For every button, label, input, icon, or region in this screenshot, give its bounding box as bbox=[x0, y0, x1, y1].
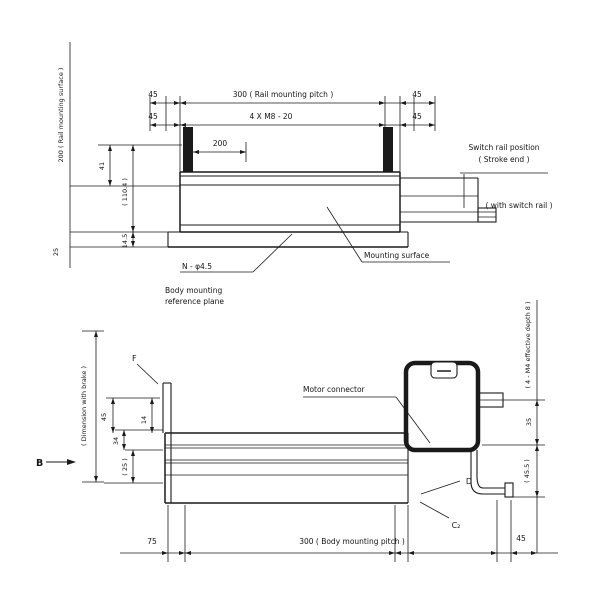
technical-drawing: 200 ( Rail mounting surface ) 45 300 ( R… bbox=[0, 0, 600, 600]
dim-75: 75 bbox=[147, 537, 157, 546]
dim-main-bottom: 300 ( Body mounting pitch ) bbox=[299, 537, 405, 546]
dimension-arrows-top bbox=[150, 101, 435, 127]
mounting-surface-leader bbox=[327, 207, 362, 262]
dim-25-paren: ( 25 ) bbox=[121, 458, 129, 475]
thread-depth-label: ( 4 - M4 effective depth 8 ) bbox=[524, 301, 532, 388]
end-connector bbox=[478, 208, 496, 222]
mounting-surface-label: Mounting surface bbox=[364, 251, 430, 260]
bottom-view: B ( Dimension with brake ) F 45 34 ( 25 … bbox=[36, 300, 558, 562]
f-label: F bbox=[132, 354, 137, 363]
c2-label: C₂ bbox=[452, 521, 461, 530]
dim-45-top-left: 45 bbox=[148, 90, 158, 99]
brake-label: ( Dimension with brake ) bbox=[80, 366, 88, 446]
view-b-label: B bbox=[36, 458, 43, 469]
top-view: 200 ( Rail mounting surface ) 45 300 ( R… bbox=[52, 42, 553, 306]
cable-elbow bbox=[471, 450, 505, 494]
rail-surface-label: 200 ( Rail mounting surface ) bbox=[57, 68, 65, 163]
dim-34: 34 bbox=[112, 437, 120, 445]
hole-leader bbox=[253, 234, 292, 272]
switch-rail-label-1: Switch rail position bbox=[468, 143, 539, 152]
switch-rail-label-2: ( Stroke end ) bbox=[478, 155, 529, 164]
cable-end-cap bbox=[505, 483, 513, 497]
dim-45-row2-left: 45 bbox=[148, 112, 158, 121]
dim-110-4: ( 110.4 ) bbox=[121, 178, 129, 206]
switch-section-label: ( with switch rail ) bbox=[485, 201, 552, 210]
dim-41: 41 bbox=[98, 162, 106, 170]
drawing-page: 200 ( Rail mounting surface ) 45 300 ( R… bbox=[0, 0, 600, 600]
dim-25: 25 bbox=[52, 248, 60, 256]
dim-14-5: 14.5 bbox=[121, 234, 129, 248]
dim-45-top-right: 45 bbox=[412, 90, 422, 99]
dim-35-right: 35 bbox=[525, 418, 533, 426]
connector-leader bbox=[396, 397, 430, 443]
dim-45-row2-right: 45 bbox=[412, 112, 422, 121]
body-reference-label-1: Body mounting bbox=[165, 286, 222, 295]
motor-connector-label: Motor connector bbox=[303, 385, 366, 394]
d-label: D bbox=[466, 477, 472, 486]
dim-14: 14 bbox=[140, 416, 148, 424]
connector-slot bbox=[431, 362, 457, 378]
dim-45-bottom: 45 bbox=[516, 534, 526, 543]
dim-main-top: 300 ( Rail mounting pitch ) bbox=[233, 90, 334, 99]
mounting-bolt-right bbox=[383, 127, 393, 172]
dim-200: 200 bbox=[213, 139, 228, 148]
f-leader bbox=[137, 364, 158, 384]
c2-leader bbox=[420, 502, 449, 518]
dim-45-5: ( 45.5 ) bbox=[523, 459, 531, 483]
dim-bolt-spec: 4 X M8 - 20 bbox=[250, 112, 293, 121]
mounting-bolt-left bbox=[183, 127, 193, 172]
body-reference-label-2: reference plane bbox=[165, 297, 224, 306]
d-leader bbox=[421, 481, 460, 494]
dim-45-left: 45 bbox=[100, 413, 108, 421]
hole-callout-label: N - φ4.5 bbox=[182, 262, 212, 271]
